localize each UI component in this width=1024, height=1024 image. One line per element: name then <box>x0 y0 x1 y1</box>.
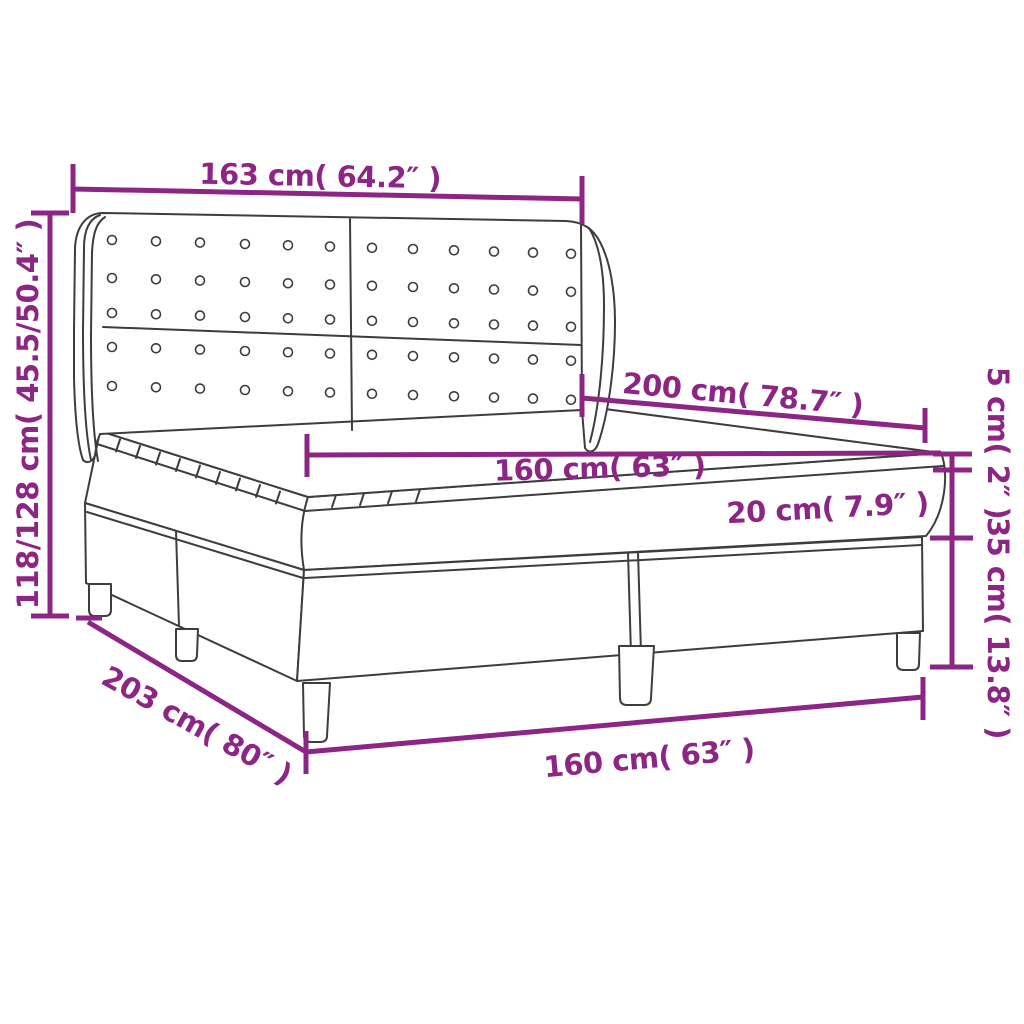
tufting-button <box>490 247 499 256</box>
tufting-button <box>284 279 293 288</box>
tufting-button <box>196 345 205 354</box>
tufting-button <box>409 318 418 327</box>
tufting-button <box>326 280 335 289</box>
tufting-button <box>567 395 576 404</box>
tufting-button <box>490 393 499 402</box>
tufting-button <box>450 319 459 328</box>
tufting-button <box>241 386 250 395</box>
tufting-button <box>284 241 293 250</box>
tufting-button <box>326 315 335 324</box>
dim-label-total-length: 203 cm( 80″ ) <box>96 659 298 791</box>
tufting-button <box>450 284 459 293</box>
tufting-button <box>567 356 576 365</box>
tufting-button <box>152 310 161 319</box>
bed-leg-rear-left <box>89 584 111 616</box>
tufting-button <box>108 343 117 352</box>
tufting-button <box>529 286 538 295</box>
tufting-button <box>152 275 161 284</box>
bed-leg-left-middle <box>176 629 198 661</box>
tufting-button <box>326 349 335 358</box>
dim-label-base-height: 35 cm( 13.8″ ) <box>981 517 1015 739</box>
tufting-button <box>326 388 335 397</box>
tufting-button <box>529 394 538 403</box>
tufting-button <box>450 392 459 401</box>
tufting-button <box>241 240 250 249</box>
tufting-button <box>196 384 205 393</box>
tufting-button <box>567 322 576 331</box>
dimension-diagram: 163 cm( 64.2″ ) 118/128 cm( 45.5/50.4″ )… <box>0 0 1024 1024</box>
tufting-button <box>409 352 418 361</box>
tufting-button <box>529 321 538 330</box>
tufting-button <box>490 285 499 294</box>
dim-label-base-width: 160 cm( 63″ ) <box>542 732 756 784</box>
tufting-button <box>409 283 418 292</box>
tufting-button <box>152 237 161 246</box>
tufting-button <box>196 238 205 247</box>
tufting-button <box>196 311 205 320</box>
tufting-button <box>241 347 250 356</box>
tufting-button <box>409 391 418 400</box>
tufting-button <box>326 242 335 251</box>
tufting-button <box>284 314 293 323</box>
dim-label-mattress-width: 160 cm( 63″ ) <box>494 448 706 488</box>
dim-label-total-height: 118/128 cm( 45.5/50.4″ ) <box>11 219 45 610</box>
tufting-button <box>284 387 293 396</box>
tufting-button <box>368 316 377 325</box>
tufting-button <box>450 353 459 362</box>
tufting-button <box>152 383 161 392</box>
bed-leg-front-middle <box>619 646 654 705</box>
tufting-button <box>567 249 576 258</box>
tufting-button <box>108 309 117 318</box>
tufting-button <box>529 248 538 257</box>
bed-diagram-svg: 163 cm( 64.2″ ) 118/128 cm( 45.5/50.4″ )… <box>0 0 1024 1024</box>
tufting-button <box>368 281 377 290</box>
tufting-button <box>284 348 293 357</box>
dim-label-headboard-width: 163 cm( 64.2″ ) <box>199 157 441 196</box>
tufting-button <box>409 245 418 254</box>
tufting-button <box>241 278 250 287</box>
tufting-button <box>490 320 499 329</box>
tufting-button <box>567 287 576 296</box>
tufting-button <box>490 354 499 363</box>
tufting-button <box>368 243 377 252</box>
tufting-button <box>450 246 459 255</box>
tufting-button <box>152 344 161 353</box>
tufting-button <box>241 313 250 322</box>
tufting-button <box>368 350 377 359</box>
tufting-button <box>108 382 117 391</box>
tufting-button <box>108 274 117 283</box>
dim-line-base-width <box>306 677 923 752</box>
bed-leg-front-right <box>897 633 920 670</box>
tufting-button <box>368 389 377 398</box>
dim-label-topper-height: 5 cm( 2″ ) <box>981 367 1015 520</box>
tufting-button <box>196 276 205 285</box>
tufting-button <box>529 355 538 364</box>
tufting-button <box>108 236 117 245</box>
